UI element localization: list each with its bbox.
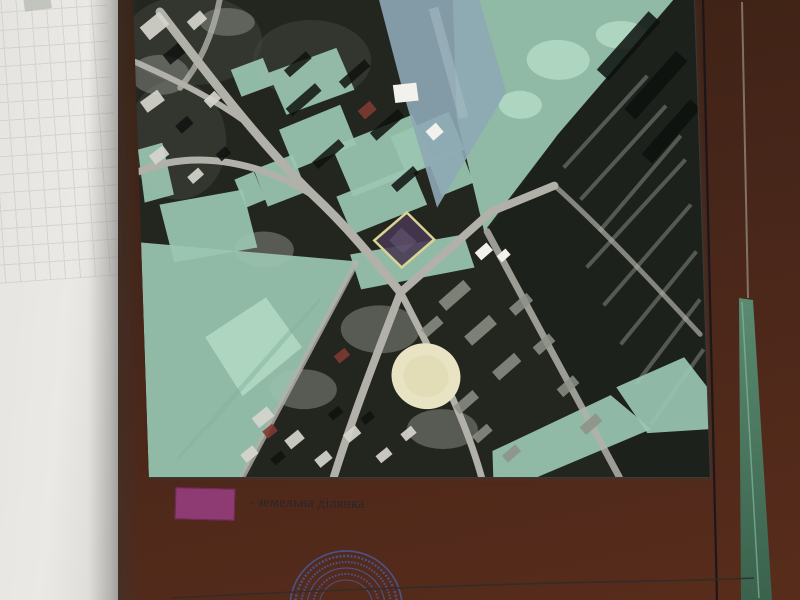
- legend: - земельна ділянка: [175, 488, 365, 520]
- photographed-scene: - земельна ділянка: [0, 0, 800, 600]
- ledger-grid: [0, 0, 118, 284]
- legend-label: - земельна ділянка: [249, 495, 365, 513]
- legend-swatch: [175, 487, 236, 521]
- satellite-map-figure: [133, 0, 711, 478]
- satellite-map-svg: [133, 0, 710, 477]
- document-page: - земельна ділянка: [0, 0, 800, 600]
- stamp-seal-icon: [283, 544, 409, 600]
- left-book-page: [0, 0, 118, 600]
- official-round-stamp: [283, 544, 409, 600]
